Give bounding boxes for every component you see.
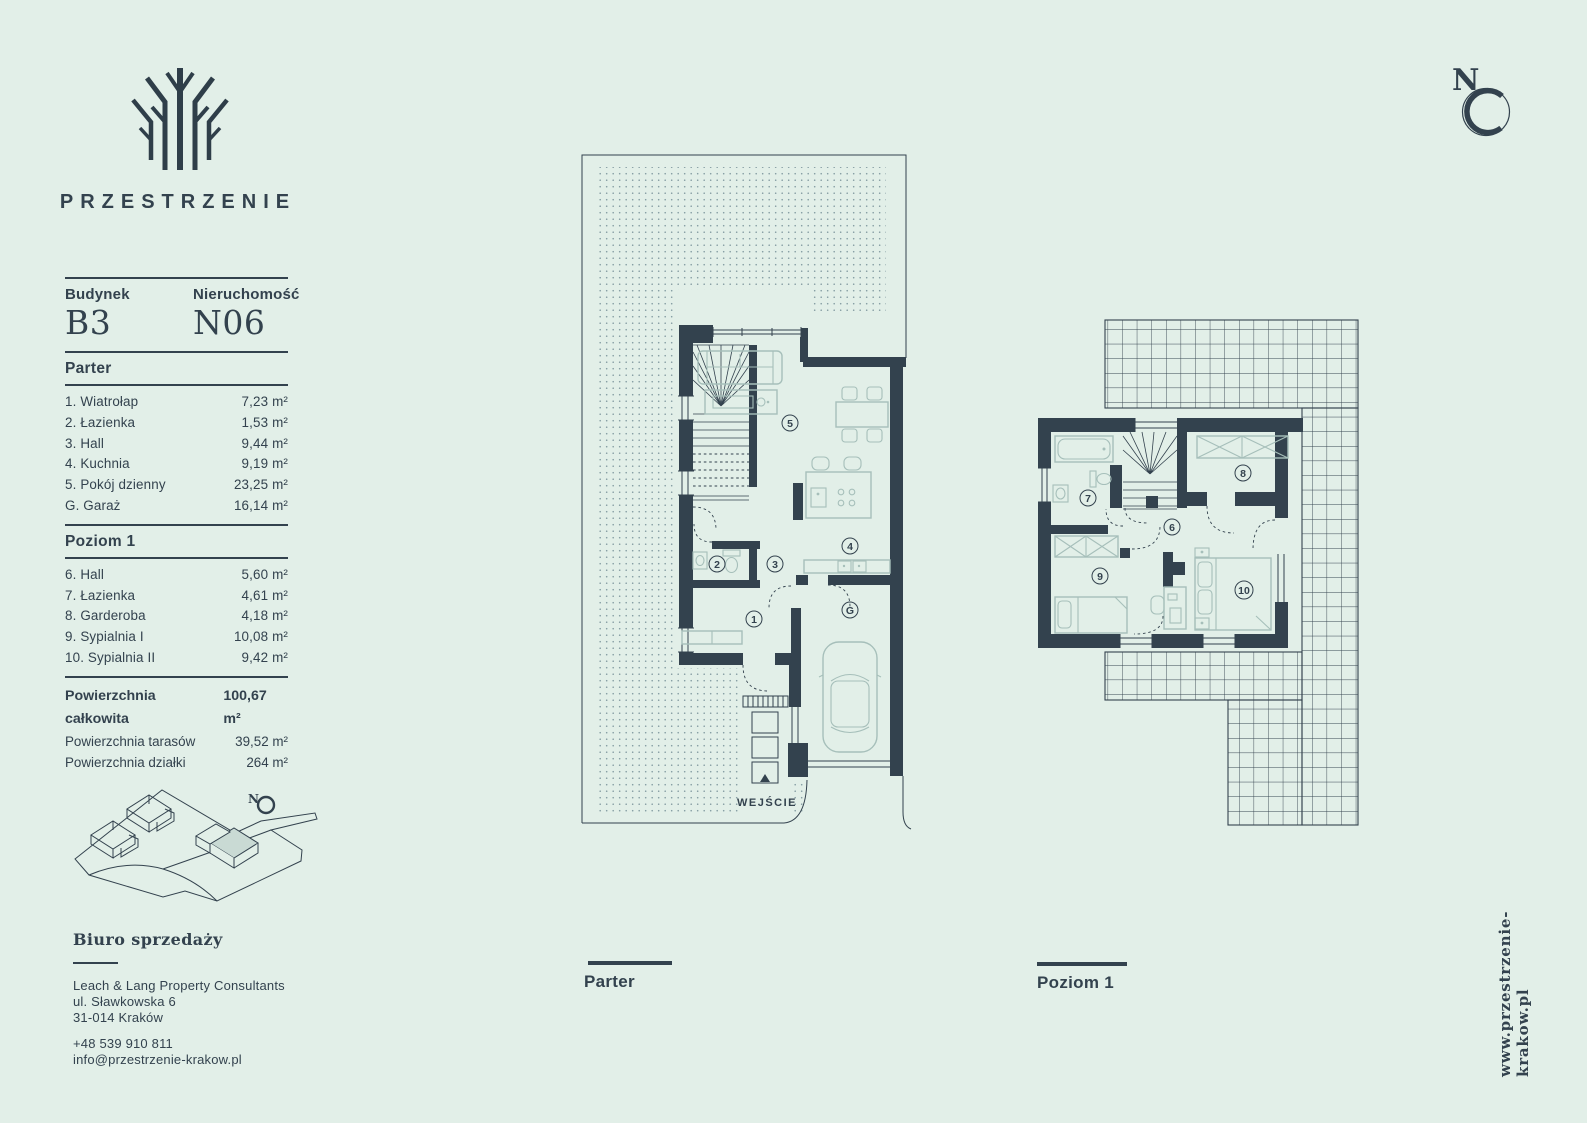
sink [693,552,707,569]
room-row: 8. Garderoba4,18 m² [65,606,288,627]
total-row: Powierzchnia całkowita100,67 m² [65,685,288,731]
room-number-10: 10 [1238,585,1250,597]
room-number-3: 3 [772,559,778,571]
garage-door [808,761,891,767]
door-arc [743,665,768,691]
website-url: www.przestrzenie-krakow.pl [1496,852,1532,1077]
building-value: B3 [65,303,193,343]
room-number-1: 1 [751,614,757,626]
property-value: N06 [193,303,288,343]
poziom1-caption-line [1037,962,1127,966]
bed-single [1055,597,1127,633]
room-labels: 1 2 3 4 5 G [709,415,858,627]
compass: N [1438,52,1523,147]
staircase [1123,432,1177,509]
door-arc [1125,508,1148,523]
kitchen-island [806,457,871,518]
house-outline [91,821,138,858]
roof-grid [1105,320,1358,825]
room-list-poziom1: 6. Hall5,60 m² 7. Łazienka4,61 m² 8. Gar… [65,559,288,676]
room-row: 5. Pokój dzienny23,25 m² [65,475,288,496]
bathtub [1055,436,1113,462]
plan-poziom1: 6 7 8 9 10 [1020,300,1380,870]
tree-logo [105,38,255,178]
room-row: 2. Łazienka1,53 m² [65,413,288,434]
desk [1151,587,1186,629]
door-arc [693,507,716,530]
room-row: 9. Sypialnia I10,08 m² [65,627,288,648]
staircase [693,345,749,500]
brand-name: PRZESTRZENIE [58,191,298,214]
toilet [723,550,740,573]
door-arc [1253,520,1275,550]
total-row: Powierzchnia tarasów39,52 m² [65,731,288,753]
door-arc [1207,506,1234,533]
room-row: 7. Łazienka4,61 m² [65,586,288,607]
kitchen-counter [804,560,890,573]
house-highlighted [196,824,258,868]
office-email: info@przestrzenie-krakow.pl [73,1052,313,1068]
poziom1-caption: Poziom 1 [1037,973,1114,993]
room-number-7: 7 [1085,493,1091,505]
door-arc [1106,509,1123,526]
room-row: 6. Hall5,60 m² [65,565,288,586]
room-number-4: 4 [847,541,853,553]
divider [73,962,118,964]
room-row: 4. Kuchnia9,19 m² [65,454,288,475]
office-street: ul. Sławkowska 6 [73,994,313,1010]
room-number-2: 2 [714,559,720,571]
room-number-8: 8 [1240,468,1246,480]
room-number-9: 9 [1097,571,1103,583]
room-row: 10. Sypialnia II9,42 m² [65,648,288,669]
unit-info-panel: Budynek B3 Nieruchomość N06 Parter 1. Wi… [65,277,288,774]
door-arc [1132,526,1160,549]
building-label: Budynek [65,286,193,303]
room-list-parter: 1. Wiatrołap7,23 m² 2. Łazienka1,53 m² 3… [65,386,288,524]
door-arc [1134,616,1163,634]
room-number-6: 6 [1169,522,1175,534]
parter-caption: Parter [584,972,635,992]
car [819,642,881,752]
property-label: Nieruchomość [193,286,288,303]
window [788,707,802,743]
floor-header-poziom1: Poziom 1 [65,526,288,557]
floor-header-parter: Parter [65,353,288,384]
dining-set [836,387,888,442]
door-arc [694,524,712,542]
room-number-g: G [846,605,854,617]
garden-dots [597,290,742,816]
toilet [1090,471,1111,487]
room-row: G. Garaż16,14 m² [65,496,288,517]
sales-office-block: Biuro sprzedaży Leach & Lang Property Co… [73,930,313,1068]
house-outline [127,795,174,832]
compass-circle-small [258,797,274,813]
stepping-stones [752,712,778,783]
site-plan-illustration: N [65,763,320,908]
office-company: Leach & Lang Property Consultants [73,978,313,994]
desk-chair [1151,596,1164,614]
office-city: 31-014 Kraków [73,1010,313,1026]
sales-office-title: Biuro sprzedaży [73,930,313,949]
area-totals: Powierzchnia całkowita100,67 m² Powierzc… [65,678,288,774]
entrance-grate [743,696,788,707]
parter-caption-line [588,961,672,965]
door-arc [769,586,791,608]
sink [1053,485,1068,502]
floorplan-sheet: PRZESTRZENIE Budynek B3 Nieruchomość N06… [0,0,1587,1123]
entrance-label: WEJŚCIE [737,796,797,809]
glass-wall [713,327,801,337]
room-row: 3. Hall9,44 m² [65,434,288,455]
entrance-arrow-icon [760,774,770,782]
plan-parter: 1 2 3 4 5 G WEJŚCIE [560,140,920,885]
room-number-5: 5 [787,418,793,430]
office-phone: +48 539 910 811 [73,1036,313,1052]
door-arc [828,585,850,607]
bed-double [1195,548,1271,630]
room-row: 1. Wiatrołap7,23 m² [65,392,288,413]
